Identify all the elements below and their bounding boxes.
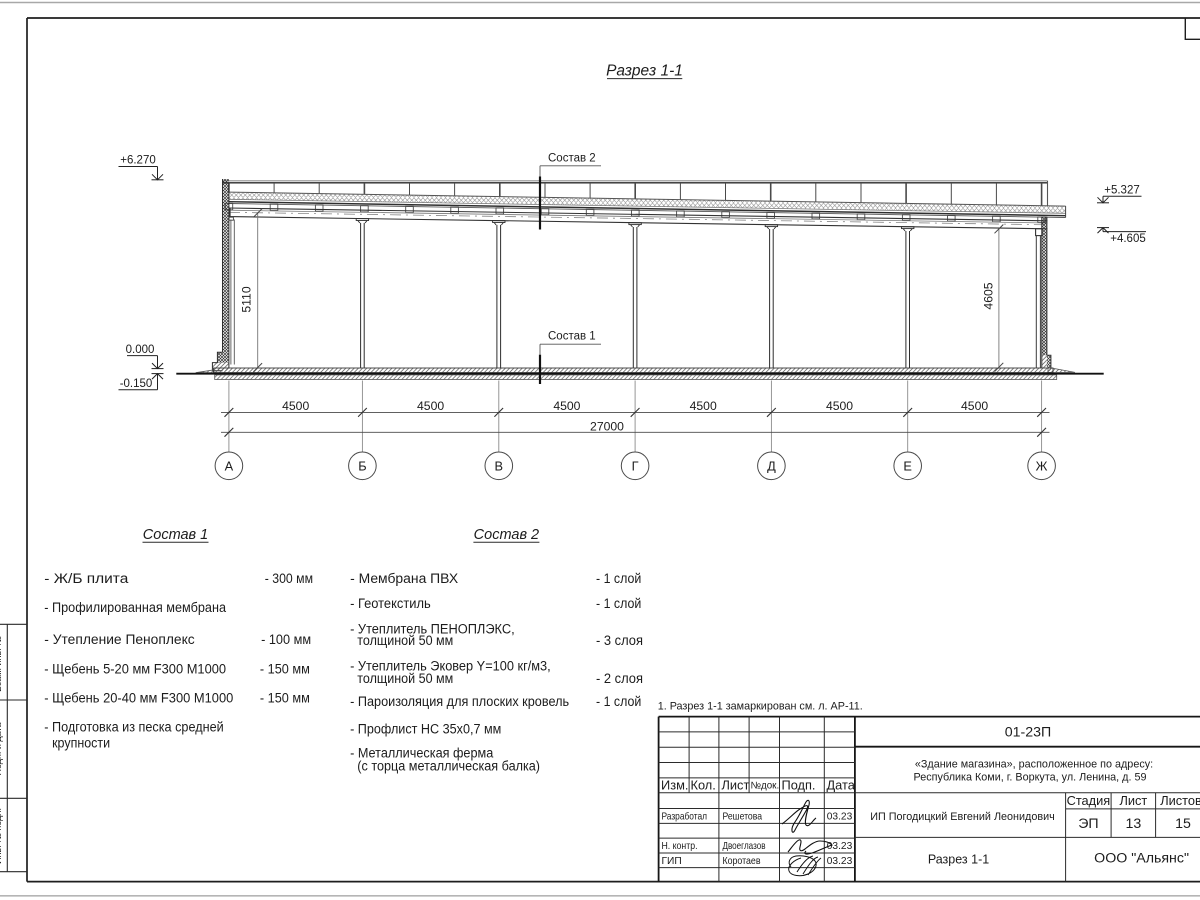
svg-text:ЭП: ЭП [1078,816,1098,832]
svg-text:ООО "Альянс": ООО "Альянс" [1094,851,1189,867]
svg-text:Инв. № подл.: Инв. № подл. [0,808,3,864]
svg-text:15: 15 [1175,816,1191,832]
svg-text:-0.150: -0.150 [120,378,153,390]
svg-text:- 100 мм: - 100 мм [261,632,311,648]
svg-text:5110: 5110 [240,286,254,312]
svg-text:Разработал: Разработал [662,811,708,823]
svg-text:- 3 слоя: - 3 слоя [596,633,643,649]
svg-text:Лист: Лист [722,777,750,792]
svg-text:03.23: 03.23 [827,841,853,852]
svg-text:Г: Г [632,459,639,474]
svg-text:№док.: №док. [751,780,780,791]
svg-text:27000: 27000 [590,419,624,433]
svg-text:Коротаев: Коротаев [723,856,761,867]
svg-text:- 1 слой: - 1 слой [596,596,641,612]
svg-text:4500: 4500 [826,399,853,413]
svg-text:- Мембрана ПВХ: - Мембрана ПВХ [350,571,459,587]
svg-text:1. Разрез 1-1 замаркирован см.: 1. Разрез 1-1 замаркирован см. л. АР-11. [658,701,863,713]
svg-text:+6.270: +6.270 [120,155,156,167]
svg-text:0.000: 0.000 [126,344,155,356]
svg-text:- Подготовка из песка средней: - Подготовка из песка средней [44,719,223,735]
svg-text:01-23П: 01-23П [1005,725,1051,741]
svg-text:Взам. инв. №: Взам. инв. № [0,636,3,692]
svg-text:Двоеглазов: Двоеглазов [723,841,766,852]
svg-text:Изм.: Изм. [661,777,688,792]
svg-text:- 1 слой: - 1 слой [596,694,641,710]
svg-text:13: 13 [1126,816,1142,832]
svg-text:- 150 мм: - 150 мм [260,691,310,707]
svg-text:Кол.: Кол. [691,777,716,792]
svg-text:толщиной 50 мм: толщиной 50 мм [357,633,453,649]
svg-text:- 2 слоя: - 2 слоя [596,671,643,687]
svg-text:(с торца металлическая балка): (с торца металлическая балка) [357,759,540,775]
svg-text:Стадия: Стадия [1067,793,1111,808]
svg-text:Н. контр.: Н. контр. [662,841,698,852]
svg-text:Состав 2: Состав 2 [548,153,596,165]
svg-text:ИП Погодицкий Евгений Леонидов: ИП Погодицкий Евгений Леонидович [870,811,1055,823]
svg-text:03.23: 03.23 [827,856,853,867]
svg-text:- 150 мм: - 150 мм [260,662,310,678]
svg-text:4500: 4500 [282,399,309,413]
svg-text:толщиной 50 мм: толщиной 50 мм [357,671,453,687]
svg-text:+4.605: +4.605 [1110,233,1146,245]
svg-text:Б: Б [358,459,366,474]
svg-text:Ж: Ж [1036,459,1048,474]
svg-text:- Щебень 20-40 мм F300 М1000: - Щебень 20-40 мм F300 М1000 [44,691,233,707]
svg-text:Д: Д [767,459,776,474]
svg-text:Подп. и дата: Подп. и дата [0,722,3,775]
svg-text:- Утепление Пеноплекс: - Утепление Пеноплекс [44,632,194,648]
svg-text:Листов: Листов [1160,793,1200,808]
svg-text:Состав 2: Состав 2 [474,527,539,543]
svg-text:Лист: Лист [1119,793,1147,808]
svg-text:Подп.: Подп. [782,777,816,792]
svg-text:ГИП: ГИП [662,856,682,867]
svg-text:- Геотекстиль: - Геотекстиль [350,596,431,612]
svg-text:Республика Коми, г. Воркута, у: Республика Коми, г. Воркута, ул. Ленина,… [914,772,1147,784]
svg-text:крупности: крупности [52,735,110,751]
svg-text:4500: 4500 [690,399,717,413]
svg-text:4500: 4500 [961,399,988,413]
svg-text:А: А [225,459,234,474]
svg-text:- Профилированная мембрана: - Профилированная мембрана [44,600,226,616]
svg-text:Состав 1: Состав 1 [143,527,208,543]
svg-text:03.23: 03.23 [827,811,853,822]
svg-text:- 1 слой: - 1 слой [596,571,641,587]
svg-text:4605: 4605 [981,282,995,309]
svg-text:- Ж/Б плита: - Ж/Б плита [44,571,128,587]
svg-text:- Профлист НС 35х0,7 мм: - Профлист НС 35х0,7 мм [350,721,501,737]
svg-text:Решетова: Решетова [723,811,763,822]
svg-text:- Щебень 5-20 мм F300 М1000: - Щебень 5-20 мм F300 М1000 [44,662,226,678]
svg-text:Е: Е [903,459,912,474]
svg-text:4500: 4500 [417,399,444,413]
svg-text:4500: 4500 [553,399,580,413]
svg-text:Состав 1: Состав 1 [548,330,596,342]
svg-text:Разрез 1-1: Разрез 1-1 [928,853,989,867]
svg-text:«Здание магазина», расположенн: «Здание магазина», расположенное по адре… [915,759,1153,771]
svg-text:- Пароизоляция для плоских кро: - Пароизоляция для плоских кровель [350,694,569,710]
svg-text:- 300 мм: - 300 мм [265,571,313,587]
svg-text:В: В [495,459,504,474]
svg-text:Разрез 1-1: Разрез 1-1 [606,63,683,80]
svg-text:+5.327: +5.327 [1104,184,1140,196]
svg-text:Дата: Дата [827,777,856,792]
